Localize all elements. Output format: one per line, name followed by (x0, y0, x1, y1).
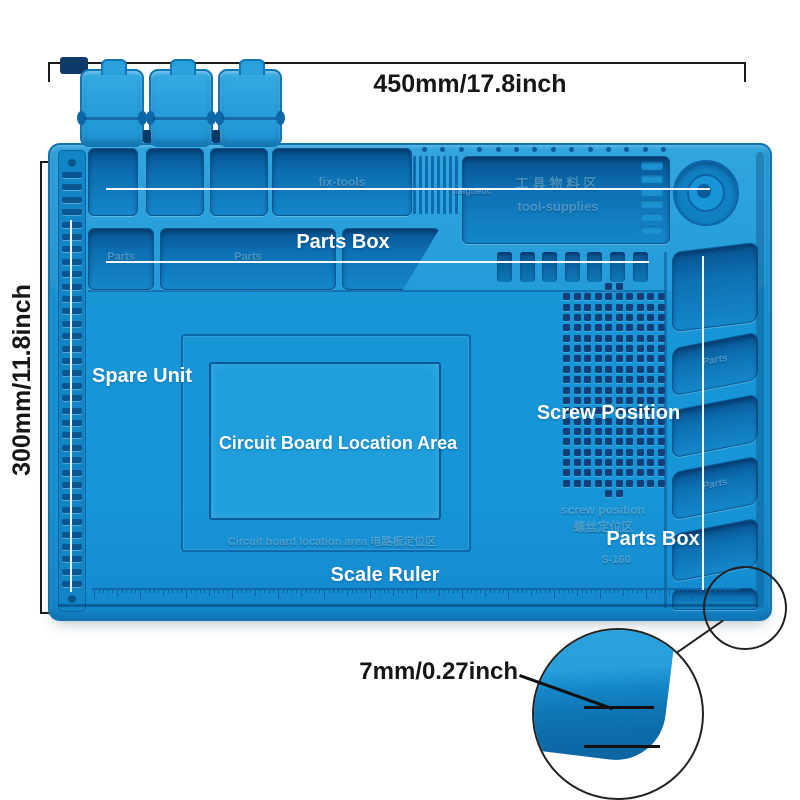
clip-seam (84, 117, 140, 120)
strip-slots (60, 172, 84, 596)
tools-tray: fix-tools (272, 148, 412, 216)
top-edge-holes (422, 147, 684, 153)
clip-seam (222, 117, 278, 120)
parts-box-right-label: Parts Box (604, 528, 702, 551)
clip-gap-shadow (143, 130, 151, 143)
height-bracket-line (40, 162, 42, 614)
product-dimension-diagram: 450mm/17.8inch 300mm/11.8inch fix-tools … (0, 0, 800, 800)
leader-line-top-row (106, 188, 710, 190)
strip-hole-bottom (68, 595, 76, 603)
molded-fix-tools-text: fix-tools (273, 175, 411, 189)
storage-clip-3 (218, 69, 282, 147)
magnified-ridge (537, 628, 618, 638)
circuit-area-label: Circuit Board Location Area (188, 433, 488, 454)
small-slot-row (497, 252, 655, 282)
molded-model-number: S-160 (592, 554, 640, 566)
clip-tab (170, 59, 196, 75)
screw-position-label: Screw Position (536, 402, 681, 425)
right-edge-band (756, 152, 764, 608)
tray-end-slots (641, 162, 663, 238)
parts-compartment: Parts (88, 228, 154, 290)
width-bracket-tick-left (48, 62, 50, 82)
comb-ribs (413, 156, 460, 214)
molded-parts-text: Parts (673, 471, 757, 498)
molded-circuit-text: Circuit board location area 电路板定位区 (192, 533, 472, 549)
storage-clip-1 (80, 69, 144, 147)
molded-parts-text: Parts (673, 347, 757, 374)
parts-box-top-label: Parts Box (293, 231, 393, 254)
thickness-line-bottom (584, 745, 660, 748)
width-dimension-label: 450mm/17.8inch (360, 70, 580, 99)
spare-unit-label: Spare Unit (92, 365, 202, 388)
thickness-line-top (584, 706, 654, 709)
clip-seam (153, 117, 209, 120)
right-strip-ridge (664, 252, 667, 608)
storage-clip-2 (149, 69, 213, 147)
right-parts-cell (672, 242, 758, 333)
width-bracket-tick-right (744, 62, 746, 82)
thickness-dimension-label: 7mm/0.27inch (352, 658, 518, 686)
magnifier-source-circle (703, 566, 787, 650)
screw-position-grid (563, 283, 669, 500)
bottom-edge-groove (58, 604, 758, 607)
parts-compartment (146, 148, 204, 216)
leader-line-right (702, 256, 704, 590)
clip-tab (239, 59, 265, 75)
parts-compartment (210, 148, 268, 216)
scale-ruler-label: Scale Ruler (325, 564, 445, 587)
clip-gap-shadow (212, 130, 220, 143)
strip-hole-top (68, 159, 76, 167)
molded-tool-supplies-en: tool-supplies (473, 199, 643, 214)
magnifier-zoom-circle (532, 628, 704, 800)
width-bracket-line (48, 62, 746, 64)
height-dimension-label: 300mm/11.8inch (8, 250, 36, 510)
molded-screw-position-en: screw position (548, 503, 658, 517)
clip-tab (101, 59, 127, 75)
magnified-ridge (532, 628, 576, 663)
leader-line-parts-box (106, 261, 649, 263)
left-slot-strip (58, 150, 86, 612)
leader-line-left-strip (70, 220, 72, 592)
ruler-ticks (94, 589, 738, 601)
round-dish-hole (697, 184, 711, 198)
tool-supplies-tray: 工具物料区 tool-supplies (462, 156, 670, 244)
parts-compartment (88, 148, 138, 216)
